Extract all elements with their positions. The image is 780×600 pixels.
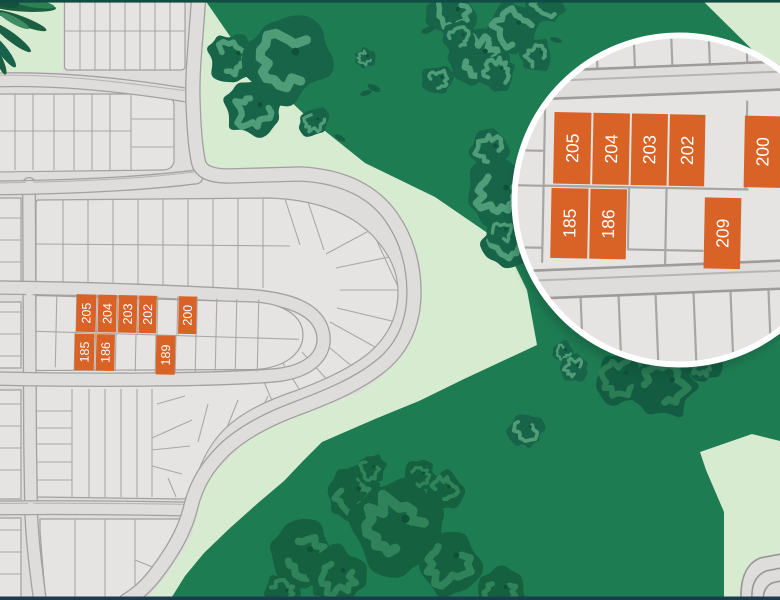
svg-text:186: 186 — [99, 342, 113, 363]
svg-text:205: 205 — [79, 302, 93, 323]
svg-text:204: 204 — [100, 303, 114, 324]
svg-text:186: 186 — [598, 209, 619, 239]
svg-text:209: 209 — [712, 218, 733, 248]
svg-text:204: 204 — [601, 134, 622, 164]
svg-text:202: 202 — [141, 304, 155, 325]
svg-text:202: 202 — [677, 136, 698, 166]
svg-text:203: 203 — [121, 303, 135, 324]
svg-text:185: 185 — [78, 341, 92, 362]
svg-text:200: 200 — [752, 137, 773, 167]
svg-text:185: 185 — [559, 209, 580, 239]
svg-text:205: 205 — [562, 133, 583, 163]
svg-text:189: 189 — [159, 344, 173, 365]
svg-text:203: 203 — [639, 135, 660, 165]
svg-text:200: 200 — [181, 305, 195, 326]
